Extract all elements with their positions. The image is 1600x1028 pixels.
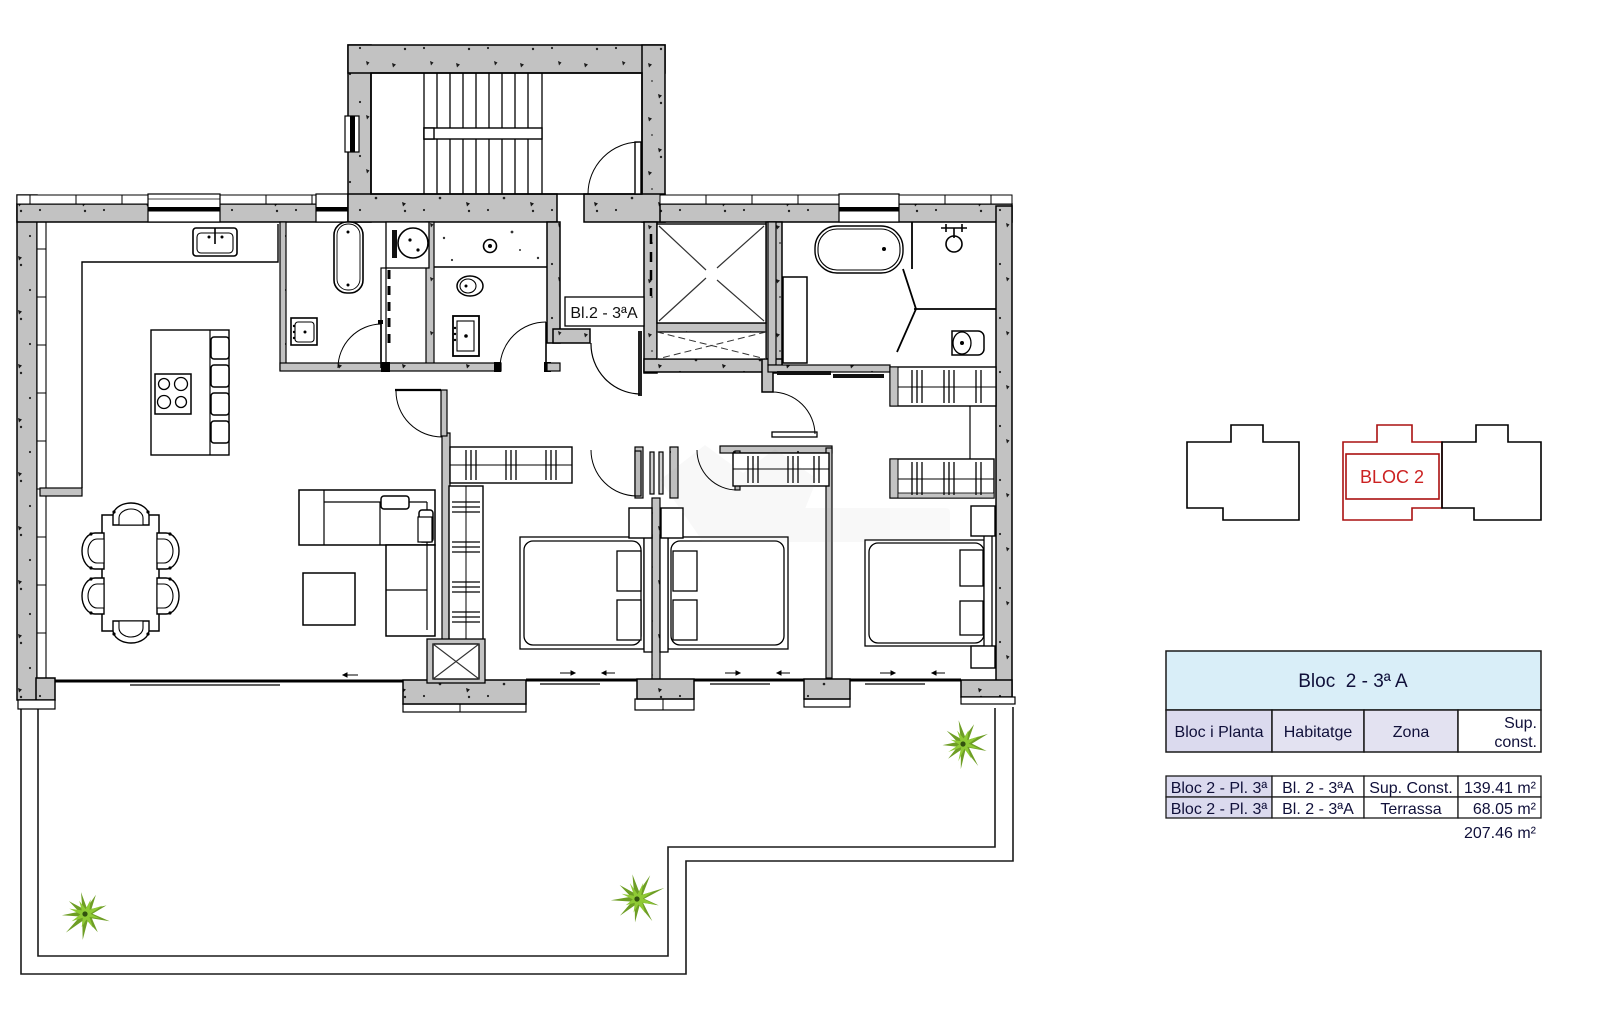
- svg-text:Bl.2 - 3ªA: Bl.2 - 3ªA: [570, 305, 638, 322]
- svg-text:const.: const.: [1494, 734, 1537, 751]
- svg-text:Sup.: Sup.: [1504, 715, 1537, 732]
- svg-text:Bl. 2 - 3ªA: Bl. 2 - 3ªA: [1282, 780, 1354, 797]
- svg-text:Habitatge: Habitatge: [1284, 724, 1353, 741]
- svg-text:Bloc 2 - 3ª A: Bloc 2 - 3ª A: [1298, 671, 1408, 692]
- svg-text:Sup. Const.: Sup. Const.: [1369, 780, 1453, 797]
- svg-text:BLOC 2: BLOC 2: [1360, 467, 1424, 487]
- svg-text:207.46 m²: 207.46 m²: [1464, 825, 1537, 842]
- svg-text:139.41 m²: 139.41 m²: [1464, 780, 1537, 797]
- svg-text:Zona: Zona: [1393, 724, 1430, 741]
- svg-text:Terrassa: Terrassa: [1380, 801, 1441, 818]
- svg-text:Bl. 2 - 3ªA: Bl. 2 - 3ªA: [1282, 801, 1354, 818]
- svg-text:Bloc 2 - Pl. 3ª: Bloc 2 - Pl. 3ª: [1171, 801, 1268, 818]
- svg-text:Bloc 2 - Pl. 3ª: Bloc 2 - Pl. 3ª: [1171, 780, 1268, 797]
- svg-text:Bloc i Planta: Bloc i Planta: [1175, 724, 1264, 741]
- svg-text:68.05 m²: 68.05 m²: [1473, 801, 1537, 818]
